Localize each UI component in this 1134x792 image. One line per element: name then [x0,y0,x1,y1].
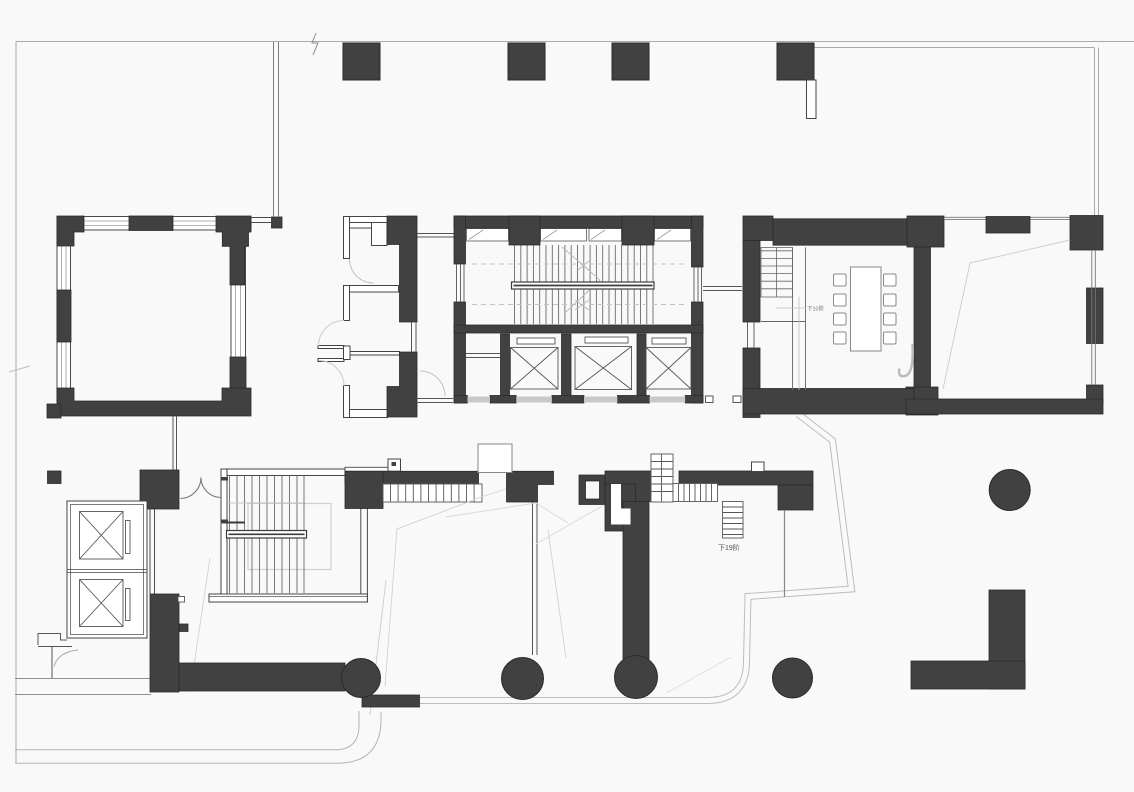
svg-text:下10阶: 下10阶 [807,305,825,313]
svg-text:下19阶: 下19阶 [718,543,740,552]
